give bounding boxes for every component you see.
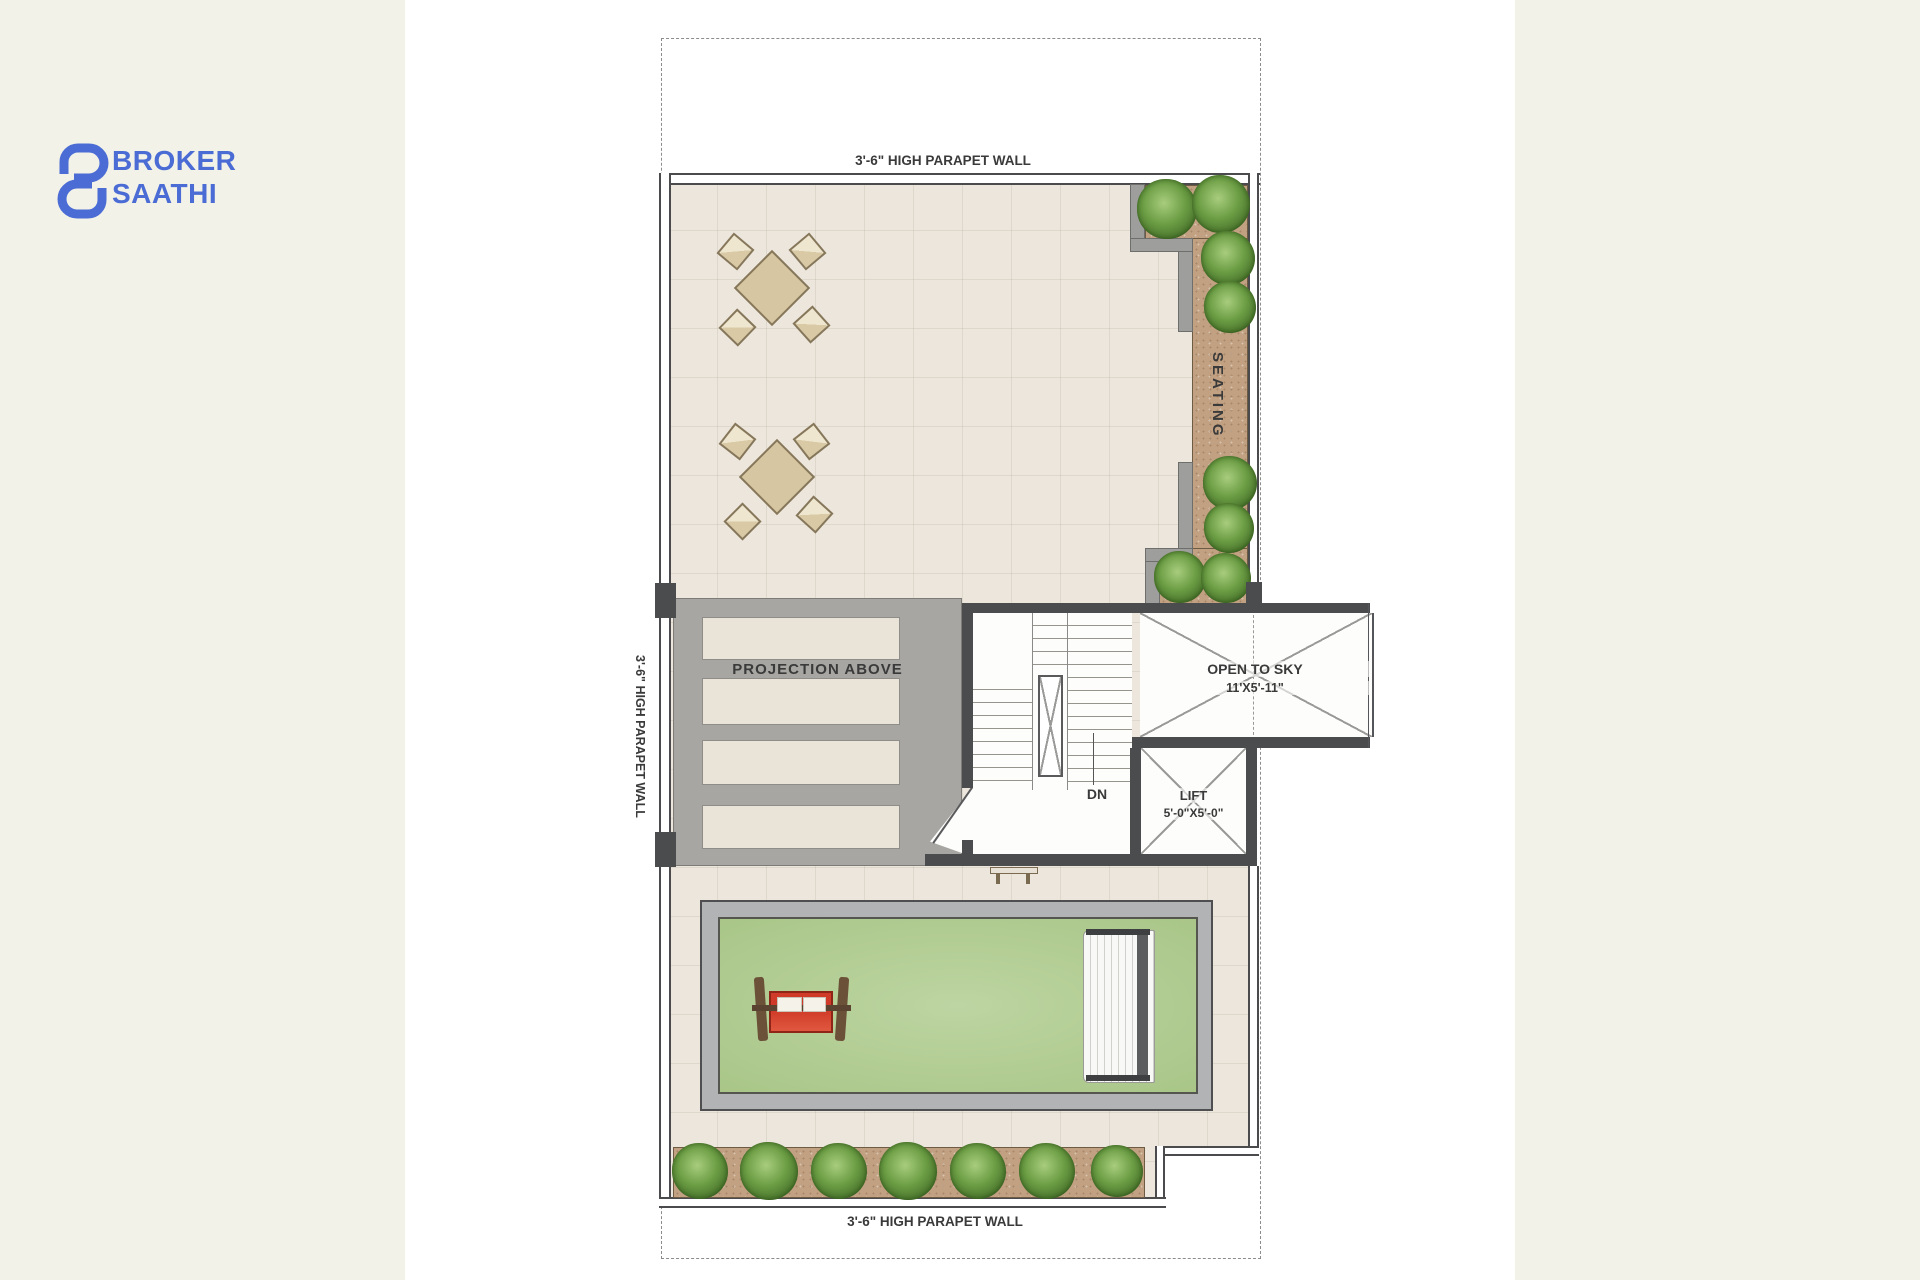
- stair-treads: [1067, 613, 1132, 785]
- open-to-sky-bottom-wall: [1132, 737, 1370, 748]
- shrub-icon: [672, 1143, 728, 1199]
- parapet-wall-left: [659, 173, 671, 1206]
- louver-slat: [702, 740, 900, 785]
- stair-left-wall: [962, 603, 973, 788]
- deck-lounger-cap: [1086, 929, 1150, 935]
- stair-divider-line: [1067, 613, 1068, 790]
- logo-monogram-icon: [57, 143, 109, 219]
- garden-wall-segment: [1130, 238, 1193, 252]
- shrub-icon: [1154, 551, 1206, 603]
- stair-direction-line: [1093, 733, 1094, 785]
- shrub-icon: [1192, 175, 1250, 233]
- left-parapet-label: 3'-6" HIGH PARAPET WALL: [633, 655, 647, 825]
- open-to-sky-label: OPEN TO SKY: [1140, 661, 1370, 677]
- logo-line1: BROKER: [112, 144, 236, 177]
- shrub-icon: [1091, 1145, 1143, 1197]
- stair-treads: [1032, 613, 1067, 677]
- projection-above-label: PROJECTION ABOVE: [673, 661, 962, 678]
- louver-slat: [702, 617, 900, 660]
- swing-pillow: [803, 997, 826, 1012]
- corner-column: [1246, 582, 1262, 613]
- top-parapet-label: 3'-6" HIGH PARAPET WALL: [793, 153, 1093, 168]
- lift-label: LIFT: [1141, 788, 1246, 803]
- stair-bottom-wall: [925, 854, 1140, 866]
- stair-treads: [973, 677, 1032, 785]
- stair-down-label: DN: [1080, 786, 1114, 802]
- louver-slat: [702, 678, 900, 725]
- bench-leg: [996, 873, 1000, 884]
- deck-lounger-rail: [1137, 931, 1148, 1080]
- stair-divider-line: [1032, 613, 1033, 790]
- shrub-icon: [1019, 1143, 1075, 1199]
- parapet-wall-right-lower: [1248, 866, 1259, 1152]
- shrub-icon: [1137, 179, 1197, 239]
- wall-column: [655, 832, 676, 867]
- wall-column: [655, 583, 676, 618]
- shrub-icon: [950, 1143, 1006, 1199]
- lift-bottom-wall: [1130, 854, 1257, 866]
- lift-right-wall: [1246, 748, 1257, 854]
- lift-left-wall: [1130, 748, 1141, 854]
- shrub-icon: [1203, 456, 1257, 510]
- shrub-icon: [1204, 503, 1254, 553]
- garden-wall-segment: [1178, 462, 1193, 550]
- garden-wall-segment: [1178, 251, 1193, 332]
- swing-pillow: [777, 997, 802, 1012]
- seating-label: SEATING: [1209, 352, 1226, 439]
- shrub-icon: [879, 1142, 937, 1200]
- parapet-wall-step-horizontal: [1155, 1146, 1259, 1156]
- logo-line2: SAATHI: [112, 177, 236, 210]
- deck-lounger-cap: [1086, 1075, 1150, 1081]
- stair-top-wall: [962, 603, 1370, 613]
- page: BROKER SAATHI SEATING PROJEC: [0, 0, 1920, 1280]
- louver-slat: [702, 805, 900, 849]
- stair-railing: [1038, 675, 1063, 777]
- shrub-icon: [740, 1142, 798, 1200]
- lift-dimension: 5'-0"X5'-0": [1141, 806, 1246, 820]
- parapet-wall-right-upper: [1248, 173, 1259, 613]
- shrub-icon: [811, 1143, 867, 1199]
- bottom-parapet-label: 3'-6" HIGH PARAPET WALL: [785, 1214, 1085, 1229]
- shrub-icon: [1204, 281, 1256, 333]
- shrub-icon: [1201, 231, 1255, 285]
- logo-wordmark: BROKER SAATHI: [112, 144, 236, 210]
- shrub-icon: [1201, 553, 1251, 603]
- open-to-sky-dimension: 11'X5'-11": [1140, 681, 1370, 695]
- bench-leg: [1026, 873, 1030, 884]
